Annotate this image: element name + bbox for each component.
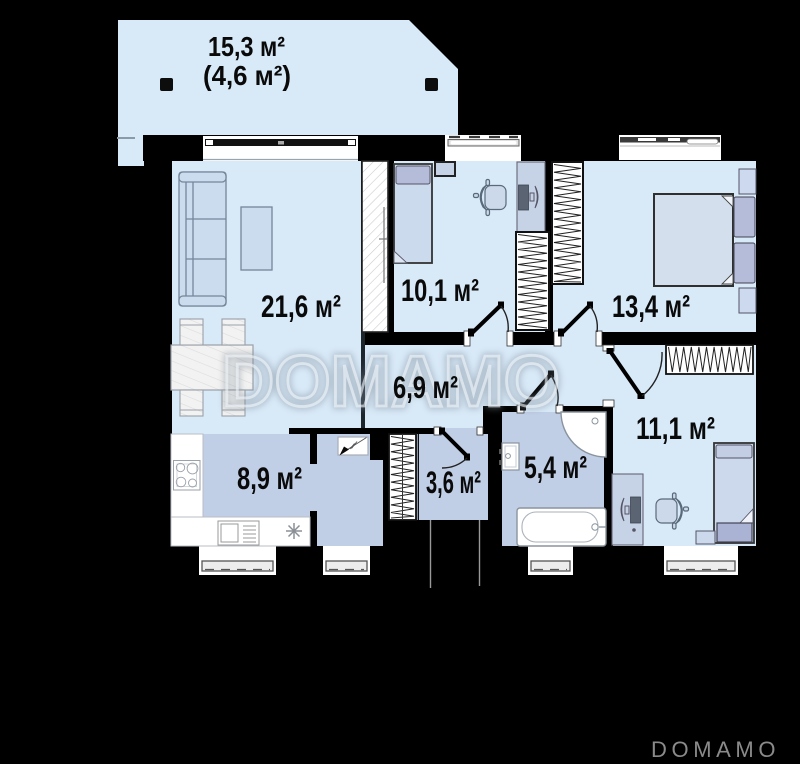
svg-text:6,9 м²: 6,9 м² bbox=[393, 369, 458, 405]
svg-text:13,4 м²: 13,4 м² bbox=[612, 288, 690, 324]
svg-text:DOMAMO: DOMAMO bbox=[222, 342, 560, 422]
svg-text:DOMAMO: DOMAMO bbox=[651, 737, 780, 762]
svg-text:8,9 м²: 8,9 м² bbox=[237, 460, 302, 496]
svg-text:21,6 м²: 21,6 м² bbox=[261, 288, 341, 324]
svg-text:10,1 м²: 10,1 м² bbox=[401, 272, 479, 308]
svg-text:(4,6 м²): (4,6 м²) bbox=[203, 60, 291, 91]
svg-text:5,4 м²: 5,4 м² bbox=[524, 449, 587, 485]
svg-text:11,1 м²: 11,1 м² bbox=[636, 410, 715, 446]
svg-text:3,6 м²: 3,6 м² bbox=[426, 464, 481, 500]
svg-text:15,3 м²: 15,3 м² bbox=[208, 31, 285, 62]
